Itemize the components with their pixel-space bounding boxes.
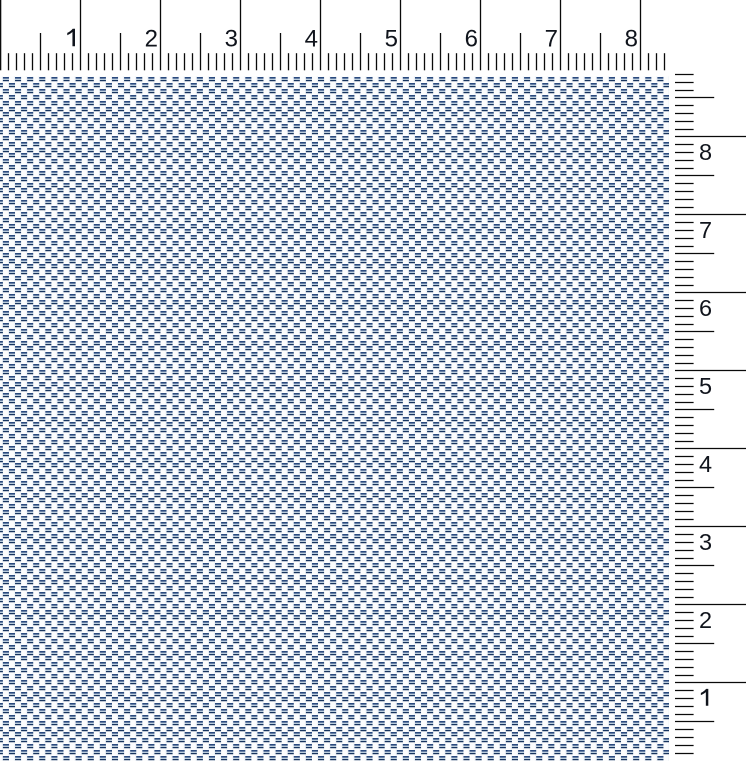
svg-text:6: 6	[699, 295, 712, 321]
svg-text:3: 3	[699, 529, 712, 555]
svg-text:2: 2	[145, 25, 158, 52]
svg-text:8: 8	[699, 139, 712, 165]
svg-text:7: 7	[699, 217, 712, 243]
svg-text:8: 8	[625, 25, 638, 52]
svg-text:7: 7	[545, 25, 558, 52]
svg-text:5: 5	[385, 25, 398, 52]
svg-text:6: 6	[465, 25, 478, 52]
svg-text:4: 4	[699, 451, 712, 477]
svg-text:5: 5	[699, 373, 712, 399]
svg-text:4: 4	[305, 25, 318, 52]
svg-text:3: 3	[225, 25, 238, 52]
svg-text:2: 2	[699, 607, 712, 633]
